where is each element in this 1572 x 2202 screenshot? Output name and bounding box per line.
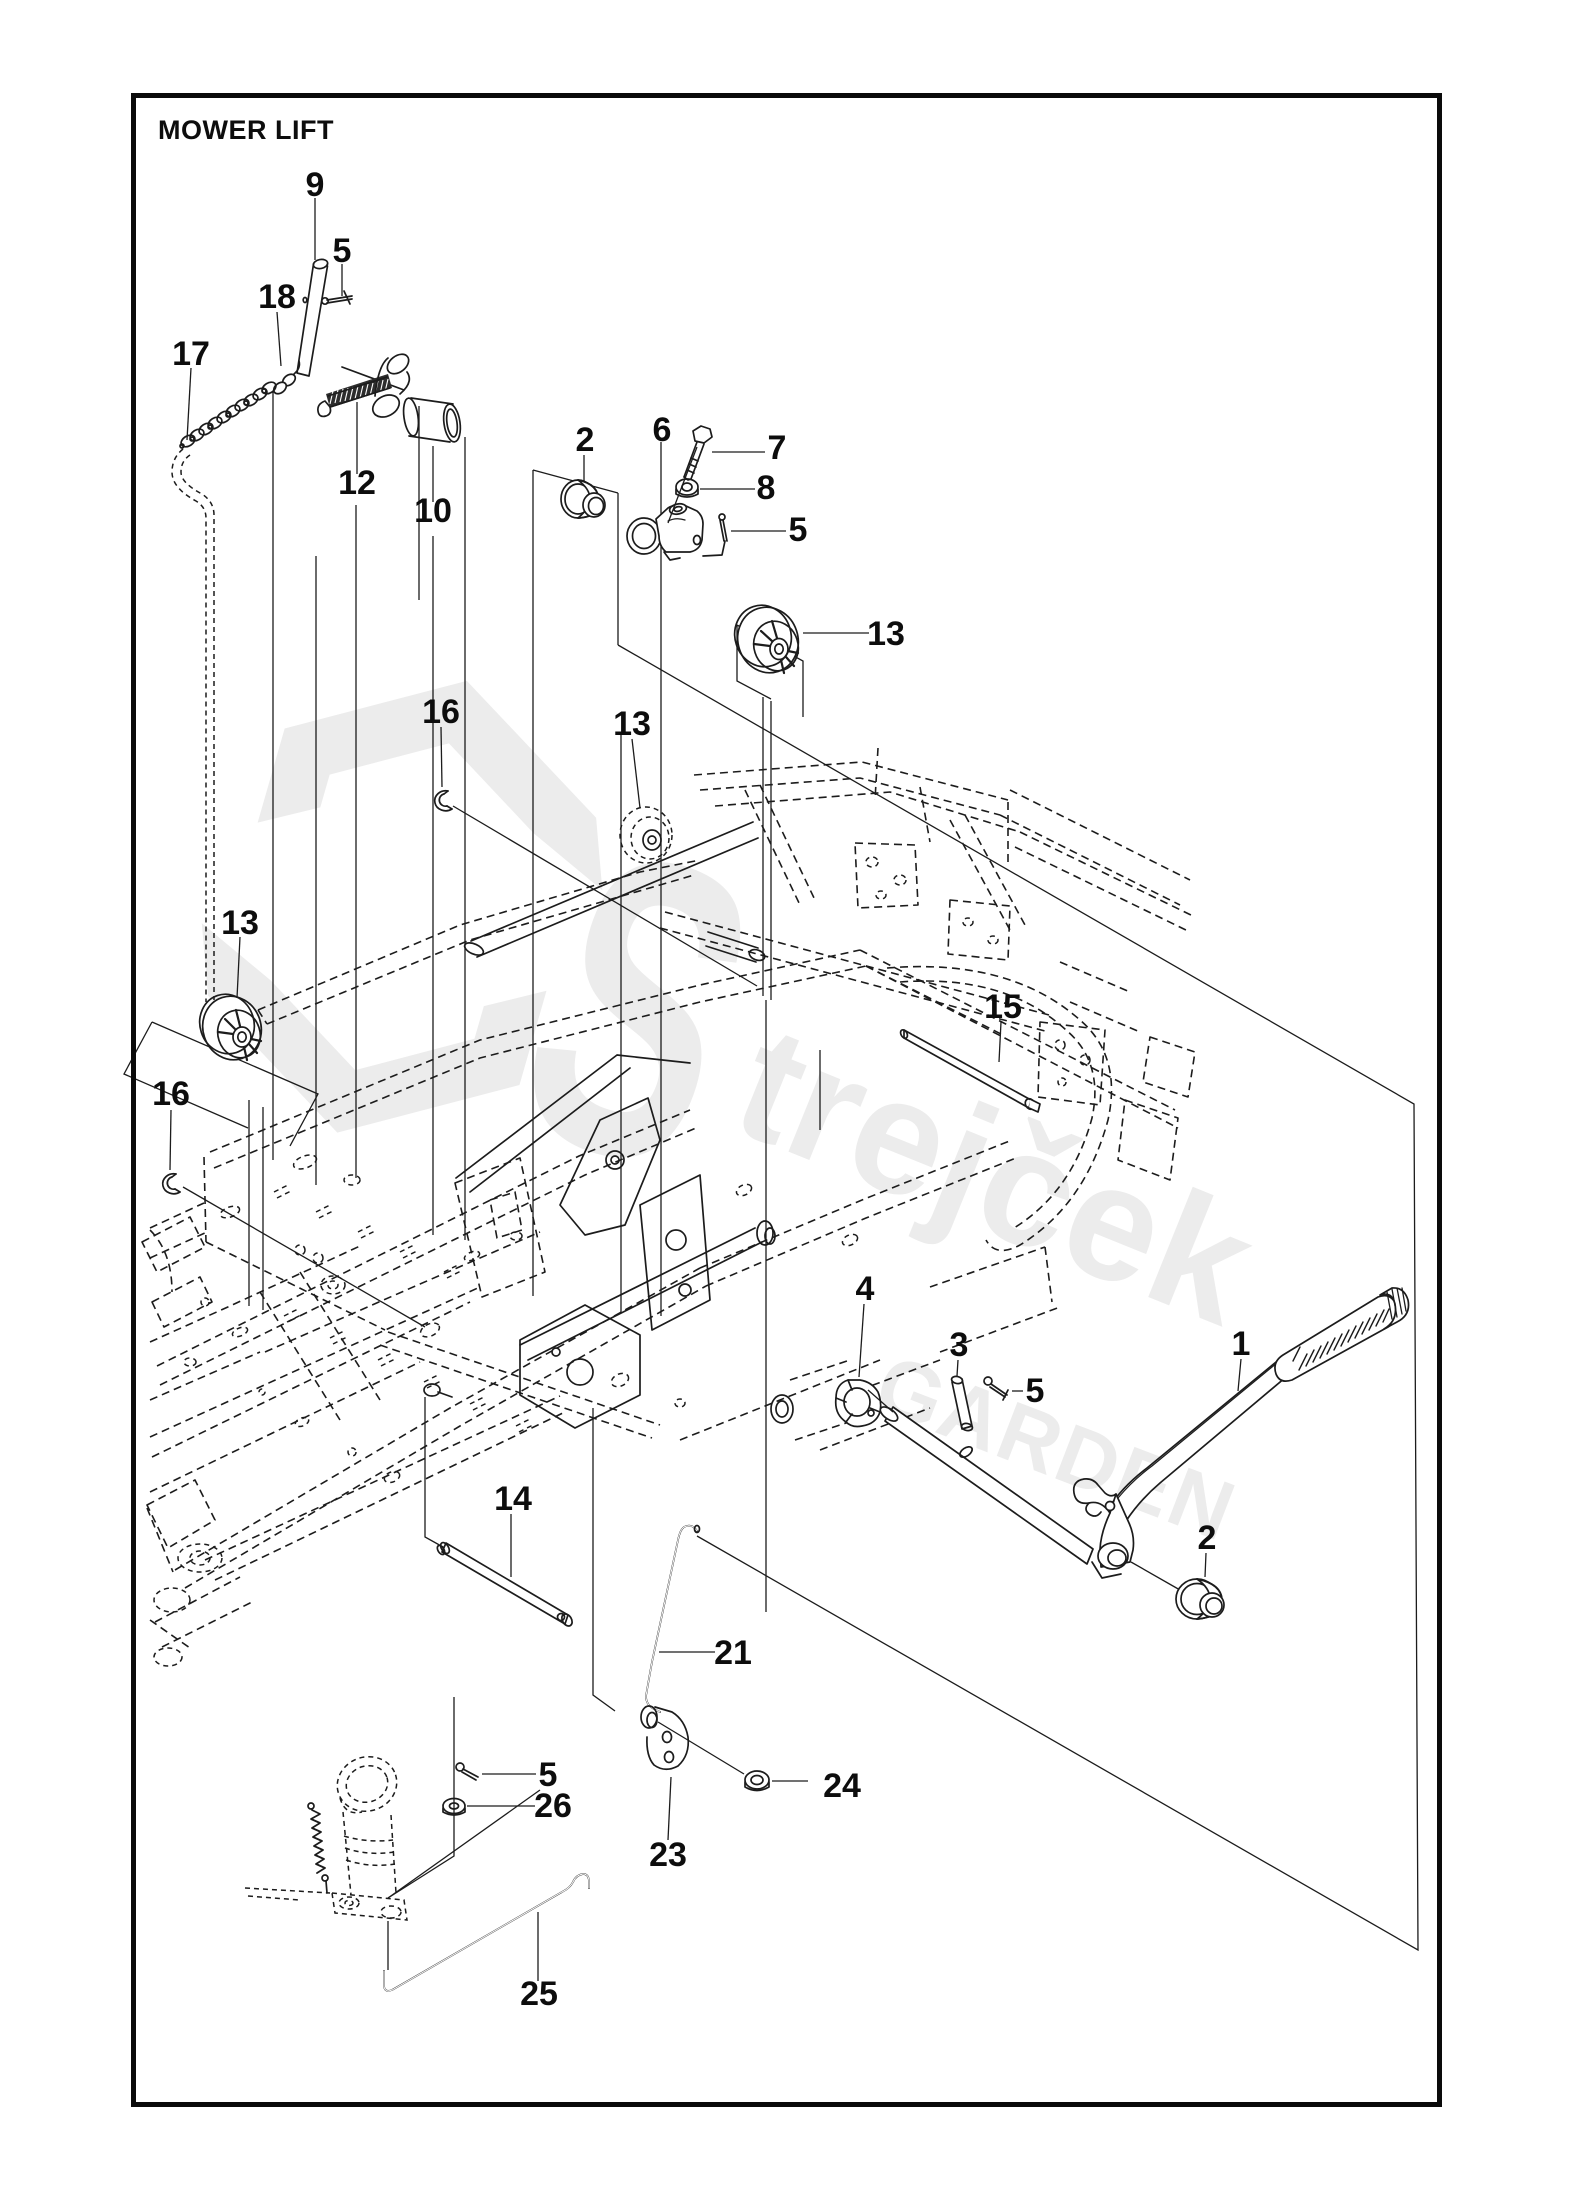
svg-text:18: 18 [258, 278, 296, 316]
svg-text:17: 17 [172, 335, 210, 373]
svg-text:5: 5 [1026, 1372, 1045, 1410]
svg-text:13: 13 [613, 705, 651, 743]
svg-text:3: 3 [950, 1326, 969, 1364]
svg-text:7: 7 [768, 429, 787, 467]
svg-text:2: 2 [1198, 1519, 1217, 1557]
svg-text:MOWER LIFT: MOWER LIFT [158, 115, 334, 145]
svg-text:16: 16 [152, 1075, 190, 1113]
svg-text:6: 6 [653, 411, 672, 449]
svg-text:9: 9 [306, 166, 325, 204]
svg-text:13: 13 [867, 615, 905, 653]
svg-text:23: 23 [649, 1836, 687, 1874]
svg-text:16: 16 [422, 693, 460, 731]
svg-text:24: 24 [823, 1767, 861, 1805]
svg-text:25: 25 [520, 1975, 558, 2013]
svg-text:4: 4 [856, 1270, 875, 1308]
svg-text:1: 1 [1232, 1325, 1251, 1363]
svg-text:2: 2 [576, 421, 595, 459]
svg-text:13: 13 [221, 904, 259, 942]
svg-text:21: 21 [714, 1634, 752, 1672]
svg-text:8: 8 [757, 469, 776, 507]
svg-text:12: 12 [338, 464, 376, 502]
svg-text:14: 14 [494, 1480, 532, 1518]
svg-text:10: 10 [414, 492, 452, 530]
svg-text:5: 5 [789, 511, 808, 549]
svg-text:15: 15 [984, 988, 1022, 1026]
svg-text:5: 5 [333, 232, 352, 270]
svg-text:26: 26 [534, 1787, 572, 1825]
